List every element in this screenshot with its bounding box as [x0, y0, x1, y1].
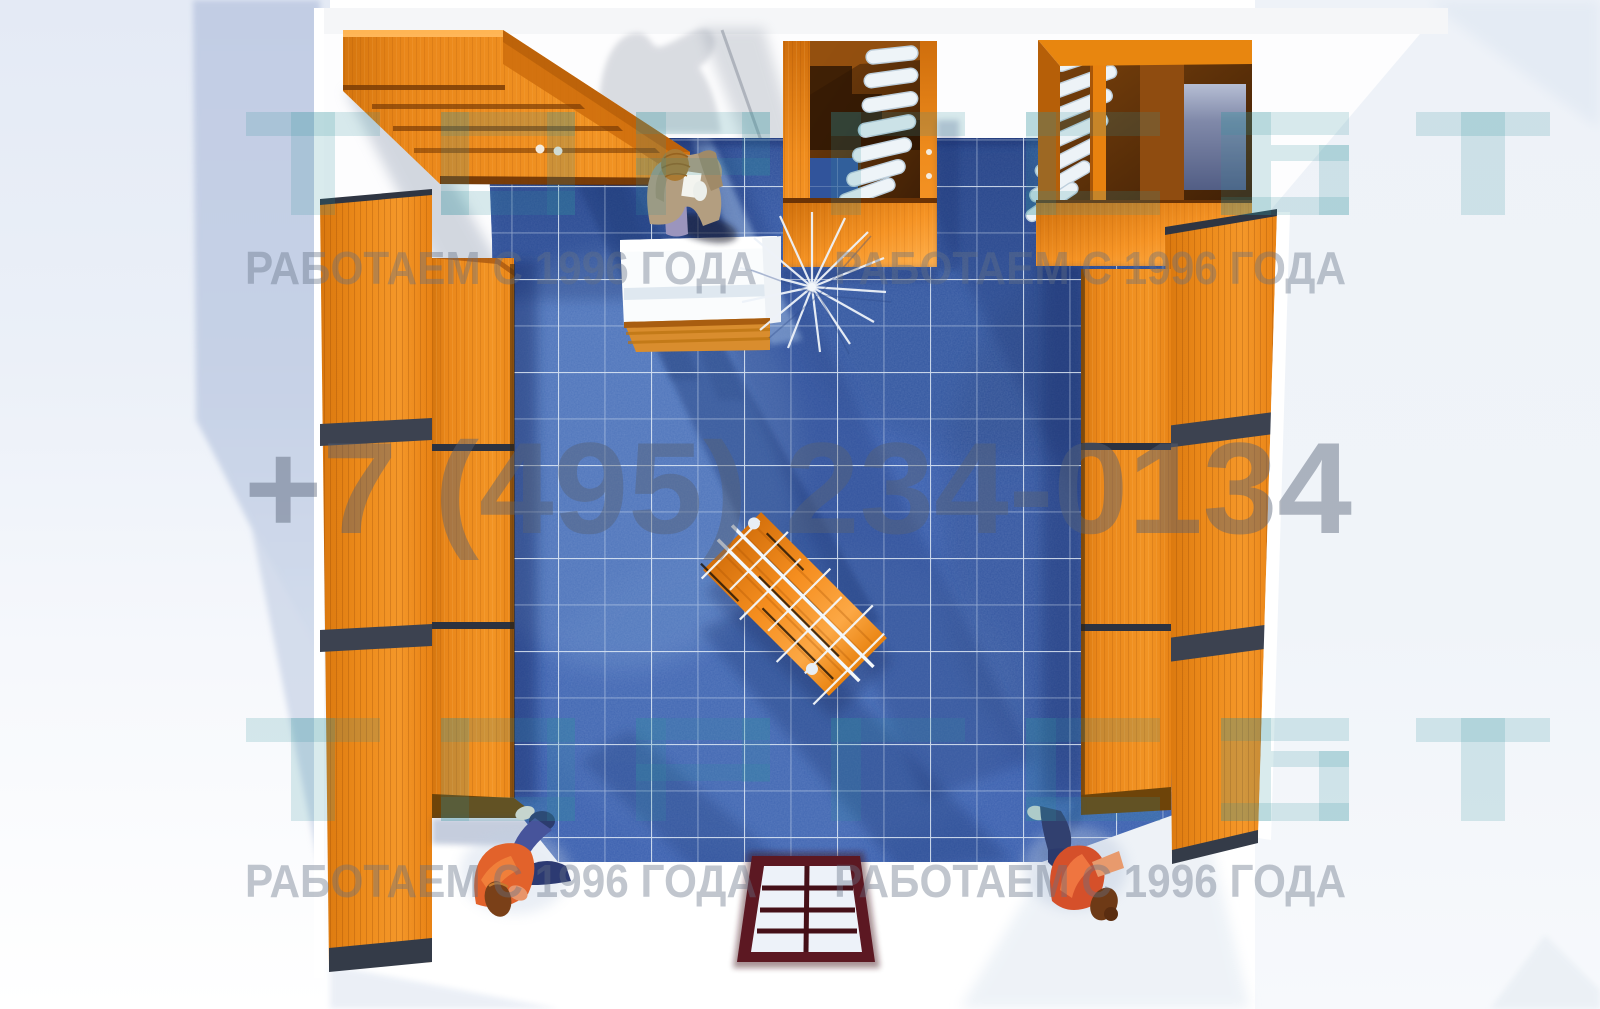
- svg-text:РАБОТАЕМ С 1996 ГОДА: РАБОТАЕМ С 1996 ГОДА: [834, 242, 1346, 294]
- svg-text:РАБОТАЕМ С 1996 ГОДА: РАБОТАЕМ С 1996 ГОДА: [834, 855, 1346, 907]
- svg-text:РАБОТАЕМ С 1996 ГОДА: РАБОТАЕМ С 1996 ГОДА: [245, 855, 757, 907]
- svg-text:+7 (495) 234-0134: +7 (495) 234-0134: [244, 415, 1352, 561]
- svg-text:РАБОТАЕМ С 1996 ГОДА: РАБОТАЕМ С 1996 ГОДА: [245, 242, 757, 294]
